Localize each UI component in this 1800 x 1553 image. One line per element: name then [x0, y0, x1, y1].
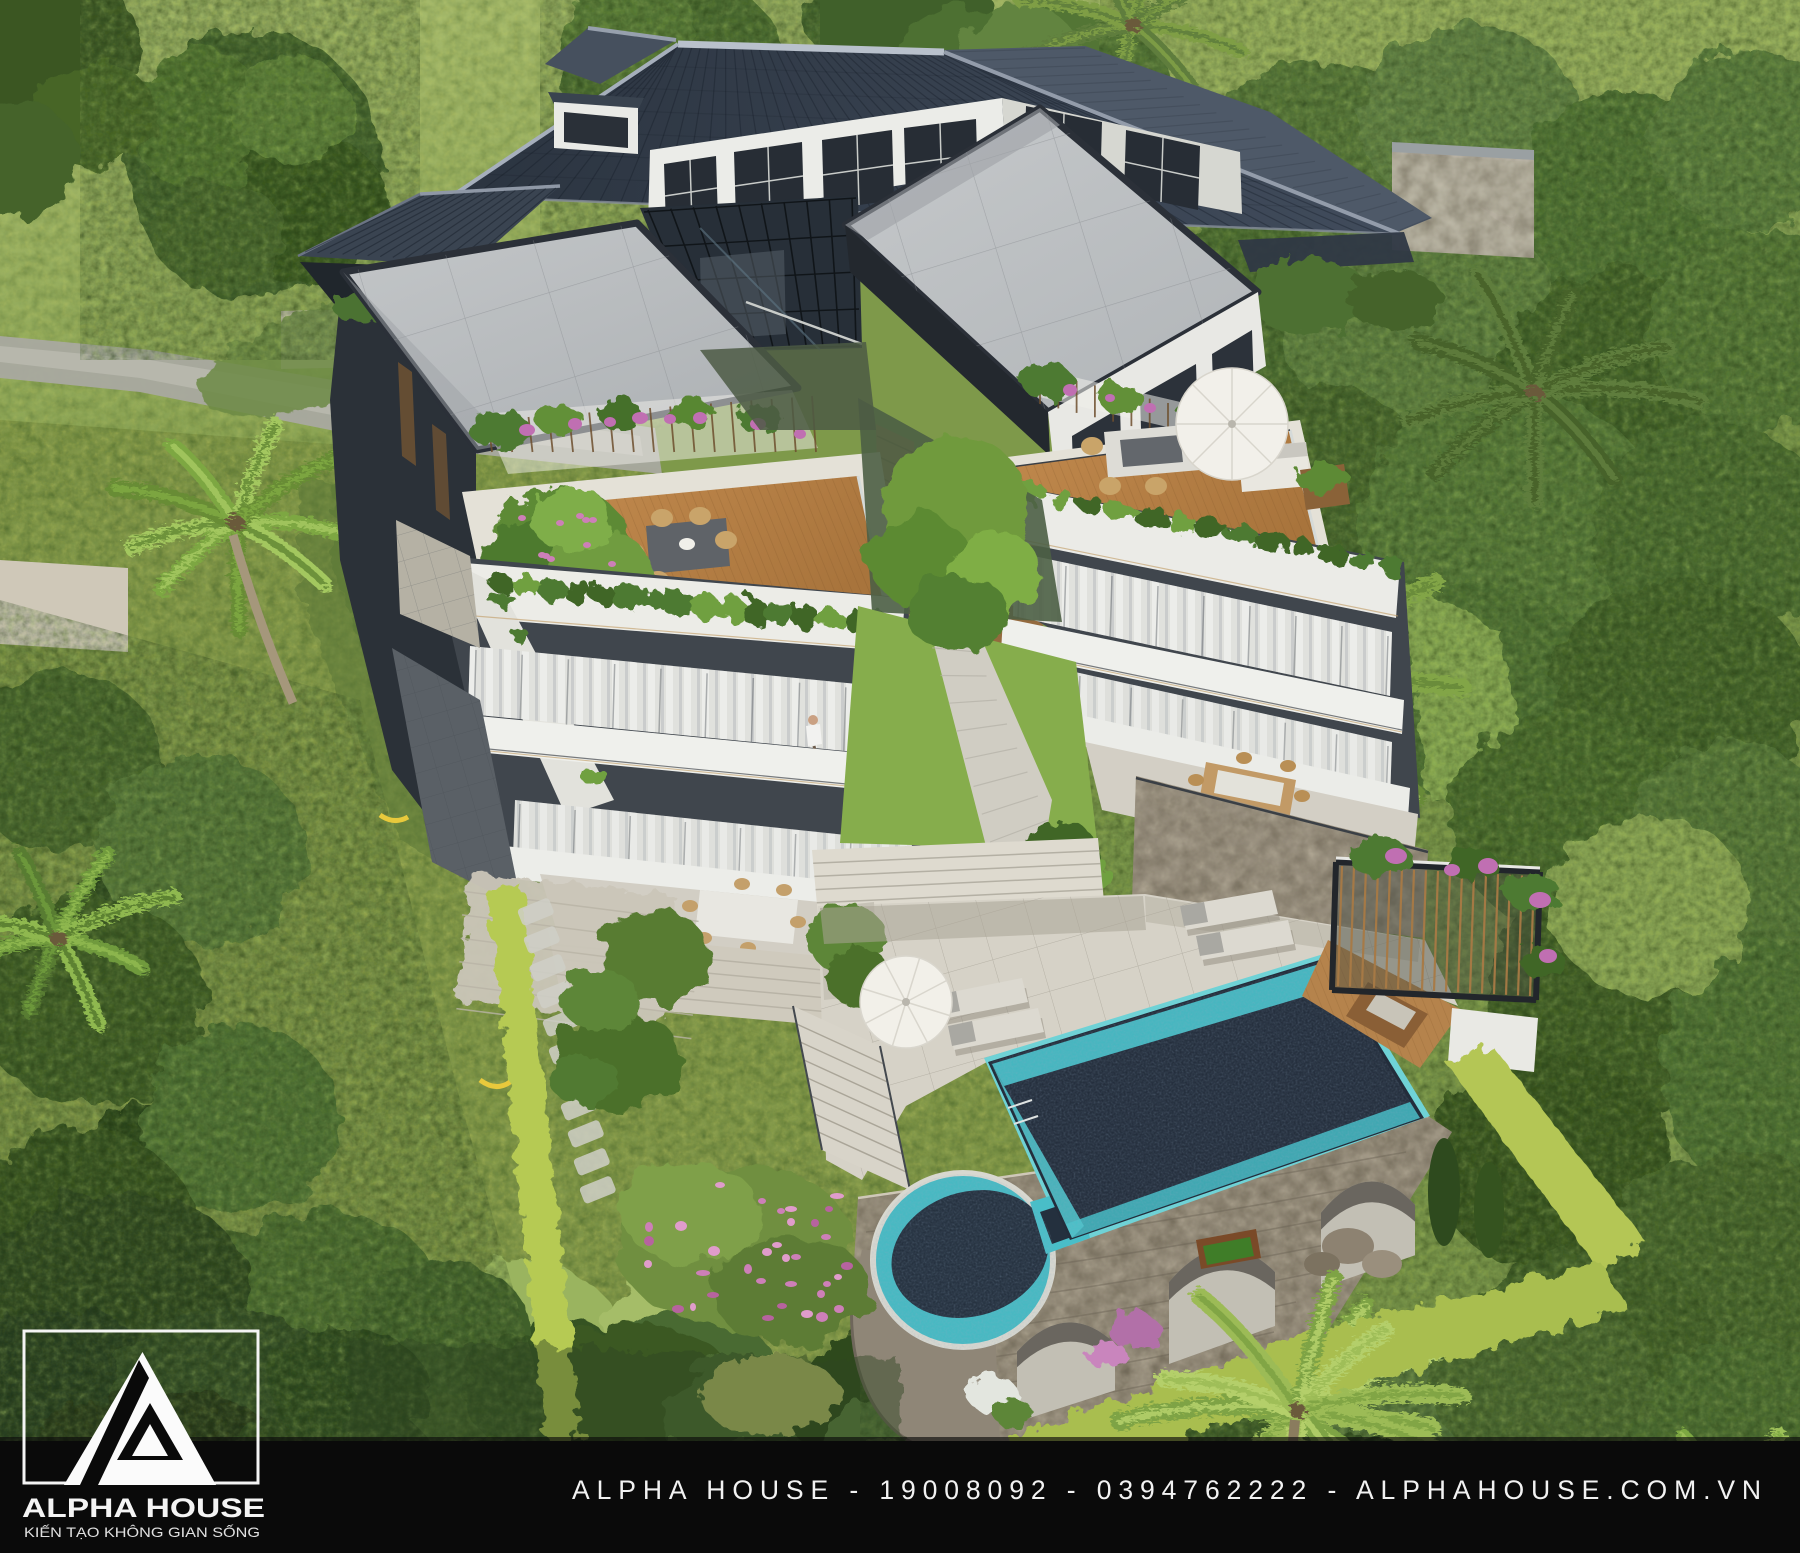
svg-text:ALPHA HOUSE - 19008092 - 0394: ALPHA HOUSE - 19008092 - 0394762222 - AL…: [572, 1475, 1768, 1505]
svg-text:ALPHA HOUSE: ALPHA HOUSE: [22, 1493, 265, 1523]
svg-text:KIẾN TẠO KHÔNG GIAN SỐNG: KIẾN TẠO KHÔNG GIAN SỐNG: [24, 1523, 260, 1540]
